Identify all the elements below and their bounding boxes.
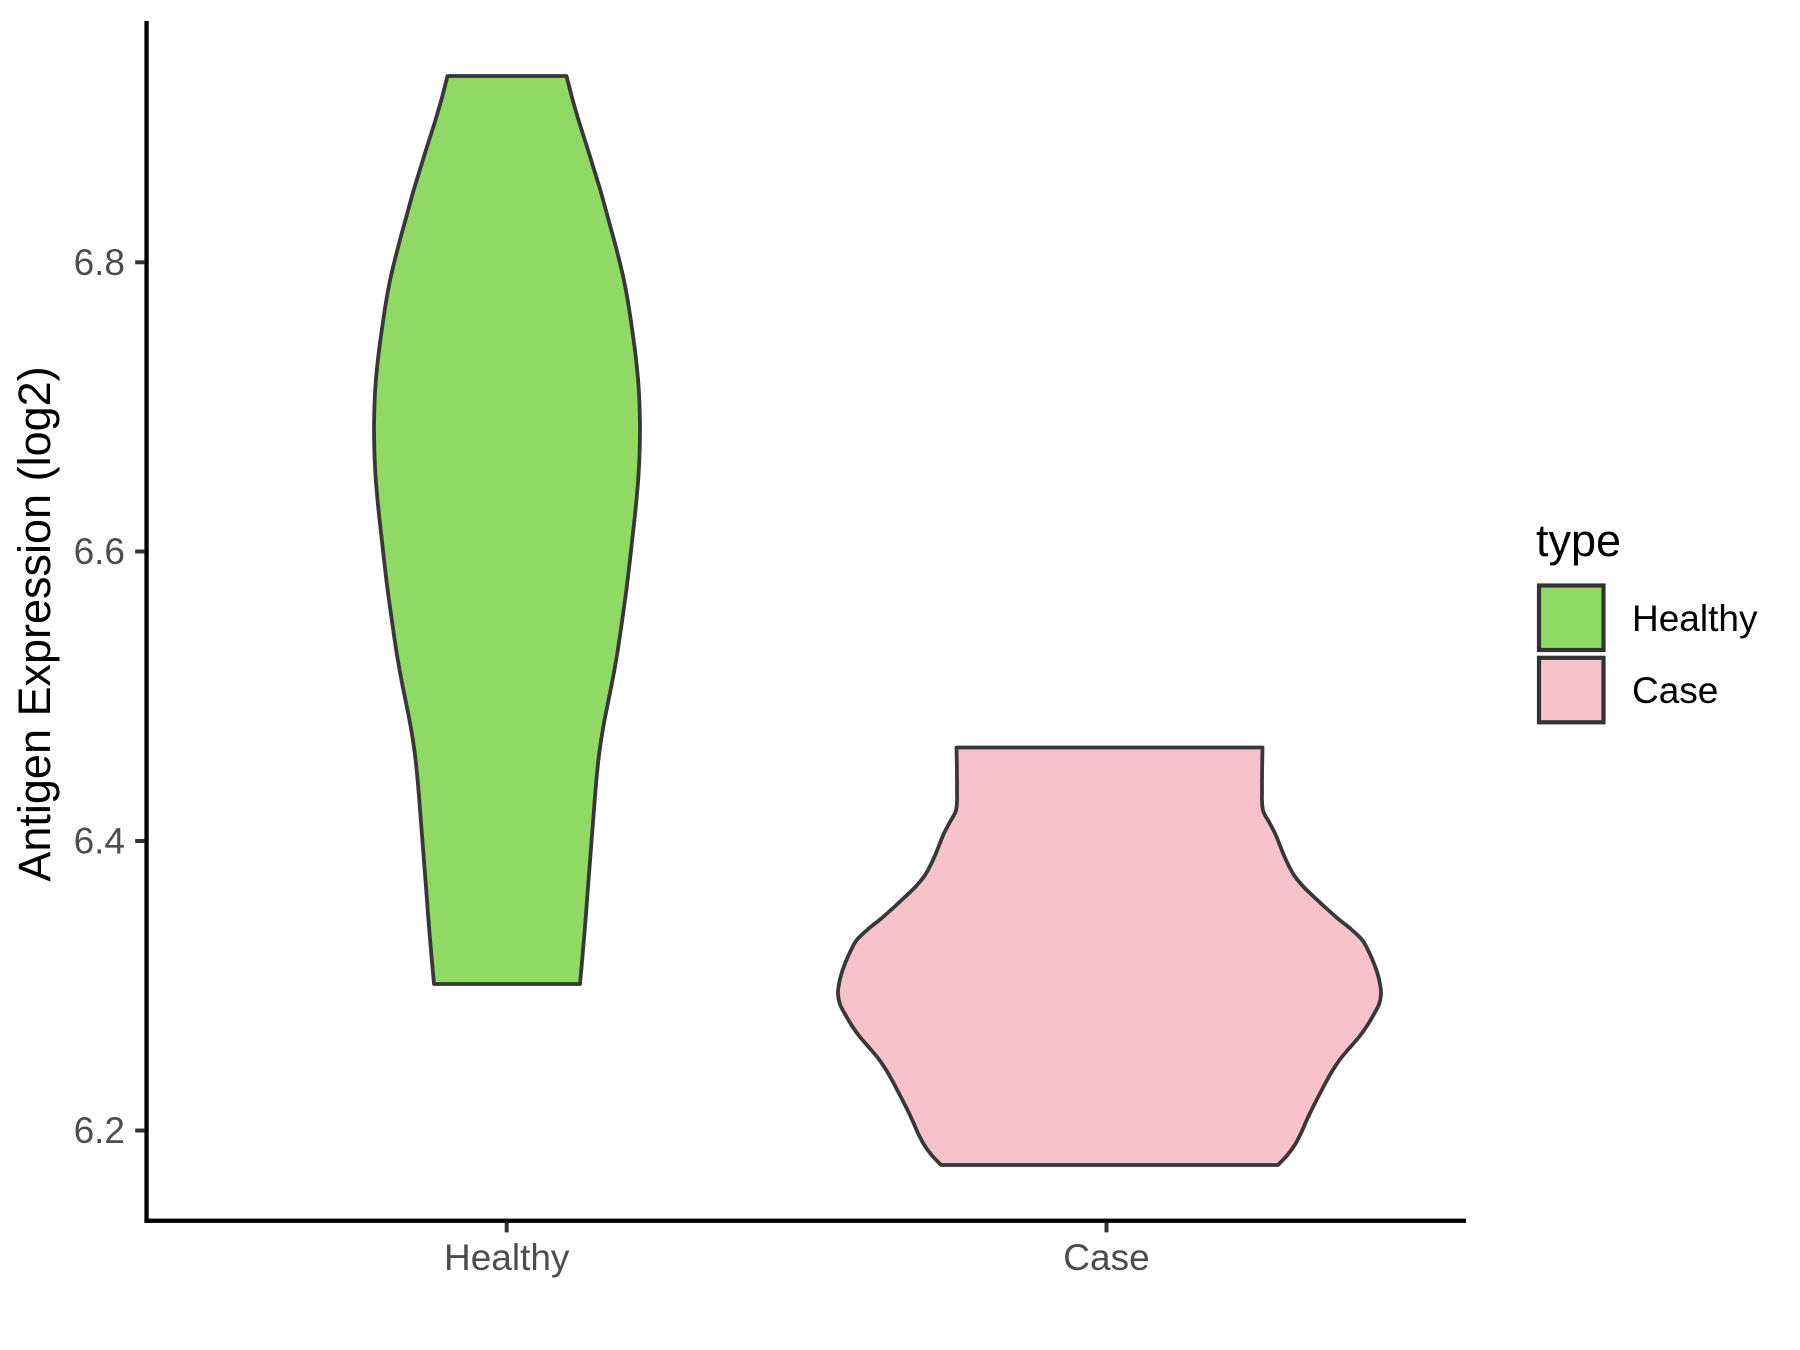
svg-text:6.6: 6.6: [74, 531, 125, 572]
svg-text:6.8: 6.8: [74, 242, 125, 283]
svg-text:Healthy: Healthy: [1632, 598, 1758, 639]
svg-text:Case: Case: [1632, 670, 1718, 711]
svg-text:Healthy: Healthy: [444, 1237, 570, 1278]
svg-text:6.2: 6.2: [74, 1110, 125, 1151]
svg-text:Antigen Expression (log2): Antigen Expression (log2): [9, 366, 60, 881]
svg-text:Case: Case: [1063, 1237, 1149, 1278]
svg-text:type: type: [1536, 515, 1621, 566]
svg-text:6.4: 6.4: [74, 821, 125, 862]
